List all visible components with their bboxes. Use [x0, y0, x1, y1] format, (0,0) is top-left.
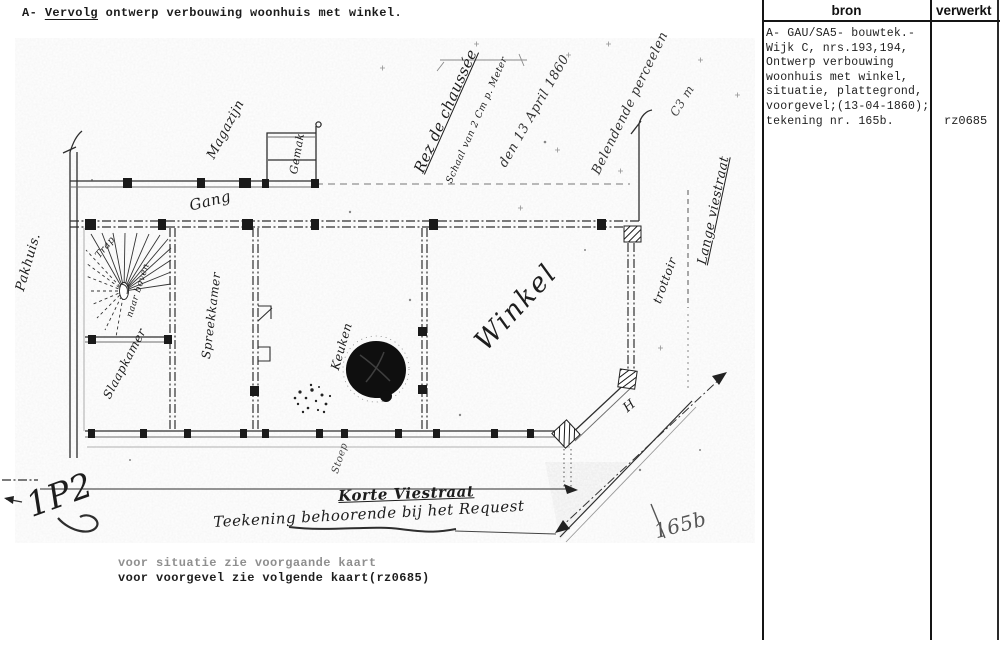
column-header-verwerkt: verwerkt [936, 3, 992, 18]
table-border-left [762, 0, 764, 640]
source-description: A- GAU/SA5- bouwtek.- Wijk C, nrs.193,19… [766, 27, 930, 129]
table-header-rule [762, 20, 1000, 22]
table-border-right [997, 0, 999, 640]
table-divider [930, 0, 932, 640]
column-header-bron: bron [763, 3, 930, 18]
caption-situatie: voor situatie zie voorgaande kaart [118, 556, 376, 570]
microfiche-document-page: A- Vervolg ontwerp verbouwing woonhuis m… [0, 0, 1000, 649]
verwerkt-reference: rz0685 [944, 114, 987, 128]
caption-voorgevel: voor voorgevel zie volgende kaart(rz0685… [118, 571, 430, 585]
